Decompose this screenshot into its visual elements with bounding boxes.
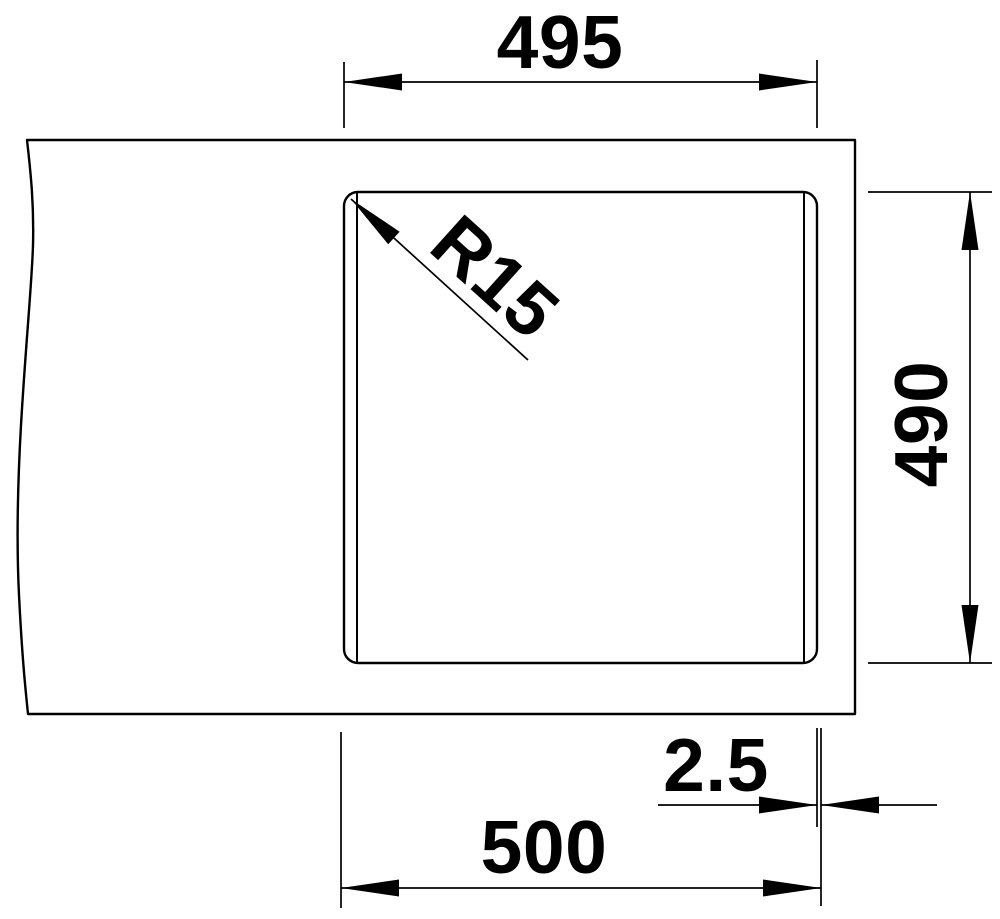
sink-bowl-outline	[344, 192, 817, 663]
dimension-depth-label: 490	[879, 361, 963, 488]
worktop-outline	[18, 140, 855, 714]
arrowhead-pointing-left-icon	[821, 797, 879, 814]
dimension-radius-callout: R15	[351, 199, 575, 360]
radius-arrowhead-icon	[351, 199, 400, 244]
arrowhead-up-icon	[962, 192, 979, 250]
arrowhead-left-icon	[344, 74, 402, 91]
bowl-cutout-rect	[344, 192, 817, 663]
dimension-width-bottom-label: 500	[481, 805, 608, 889]
sink-dimension-diagram: 495 R15 490 2.5	[0, 0, 1000, 919]
dimension-radius-label: R15	[416, 199, 576, 354]
arrowhead-down-icon	[962, 605, 979, 663]
dimension-rim-offset: 2.5	[658, 723, 937, 906]
dimension-width-top-label: 495	[497, 0, 624, 84]
worktop-edge-path	[18, 140, 855, 714]
arrowhead-left-icon	[341, 880, 399, 897]
dimension-depth-right: 490	[868, 192, 992, 663]
dimension-rim-offset-label: 2.5	[663, 723, 769, 807]
technical-drawing-canvas: 495 R15 490 2.5	[0, 0, 1000, 919]
arrowhead-right-icon	[759, 74, 817, 91]
arrowhead-right-icon	[763, 880, 821, 897]
dimension-width-top: 495	[344, 0, 817, 128]
